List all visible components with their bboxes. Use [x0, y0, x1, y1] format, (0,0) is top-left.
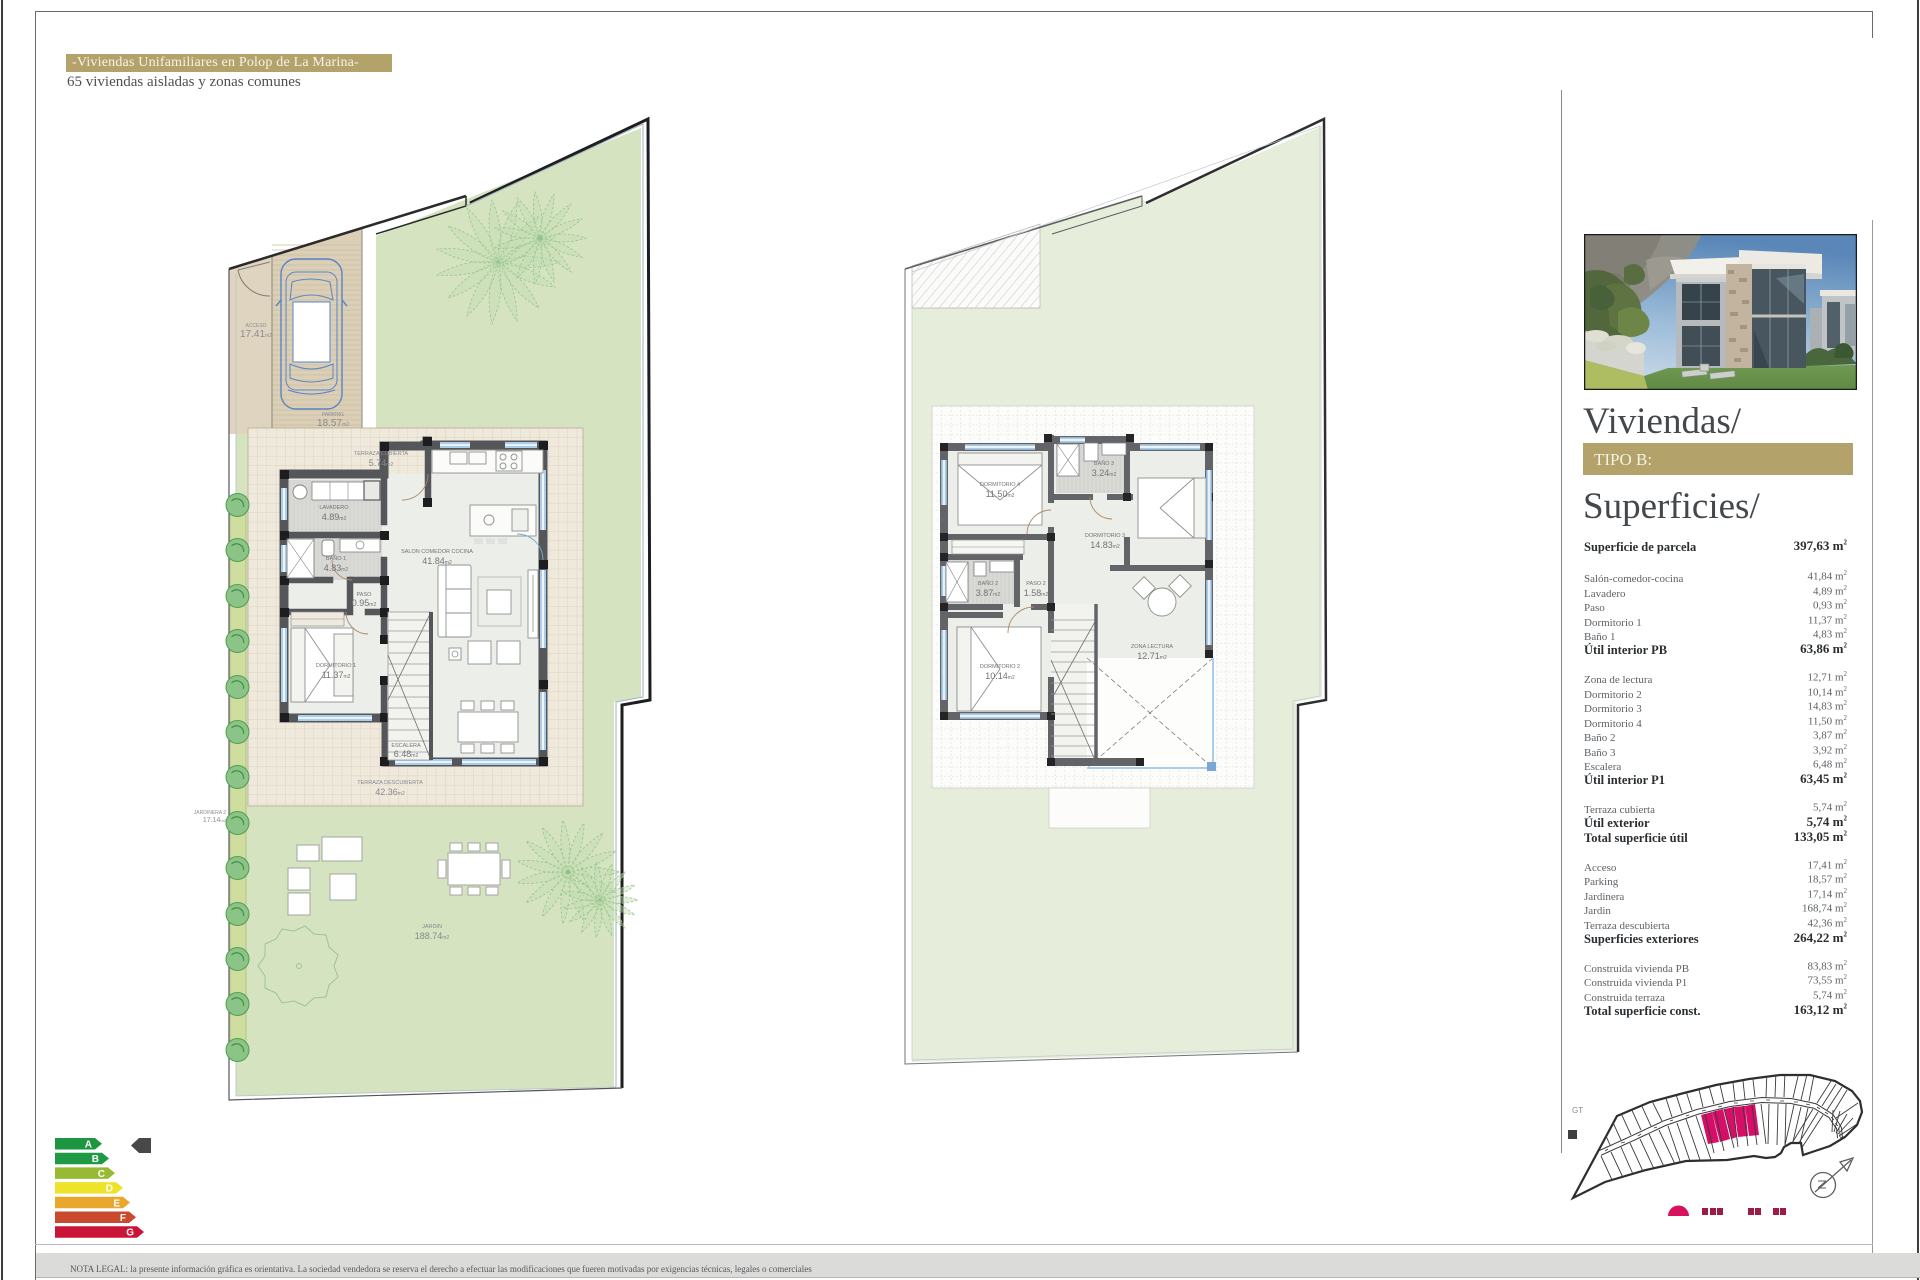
svg-text:A: A: [85, 1140, 92, 1151]
svg-text:DORMITORIO 4: DORMITORIO 4: [980, 482, 1020, 488]
svg-text:JARDINERA 2: JARDINERA 2: [194, 810, 226, 816]
svg-text:DORMITORIO 2: DORMITORIO 2: [980, 664, 1020, 670]
svg-text:G: G: [126, 1228, 134, 1239]
svg-text:F: F: [120, 1213, 126, 1224]
svg-text:JARDIN: JARDIN: [422, 924, 442, 930]
svg-text:E: E: [113, 1198, 120, 1209]
svg-text:ZONA LECTURA: ZONA LECTURA: [1131, 644, 1174, 650]
svg-text:SALON COMEDOR COCINA: SALON COMEDOR COCINA: [401, 549, 473, 555]
svg-text:BAÑO 1: BAÑO 1: [326, 555, 346, 562]
svg-text:D: D: [106, 1184, 113, 1195]
svg-text:BAÑO 2: BAÑO 2: [978, 580, 998, 587]
svg-text:LAVADERO: LAVADERO: [319, 505, 349, 511]
svg-text:B: B: [92, 1154, 99, 1165]
svg-text:17.14m2: 17.14m2: [203, 817, 227, 824]
svg-text:DORMITORIO 3: DORMITORIO 3: [1085, 533, 1125, 539]
svg-text:TERRAZA CUBIERTA: TERRAZA CUBIERTA: [354, 451, 409, 457]
svg-text:PASO 2: PASO 2: [1026, 581, 1045, 587]
svg-text:BAÑO 3: BAÑO 3: [1094, 460, 1114, 467]
svg-text:C: C: [98, 1169, 105, 1180]
svg-text:TERRAZA DESCUBIERTA: TERRAZA DESCUBIERTA: [357, 780, 423, 786]
svg-text:DORMITORIO 1: DORMITORIO 1: [316, 663, 356, 669]
